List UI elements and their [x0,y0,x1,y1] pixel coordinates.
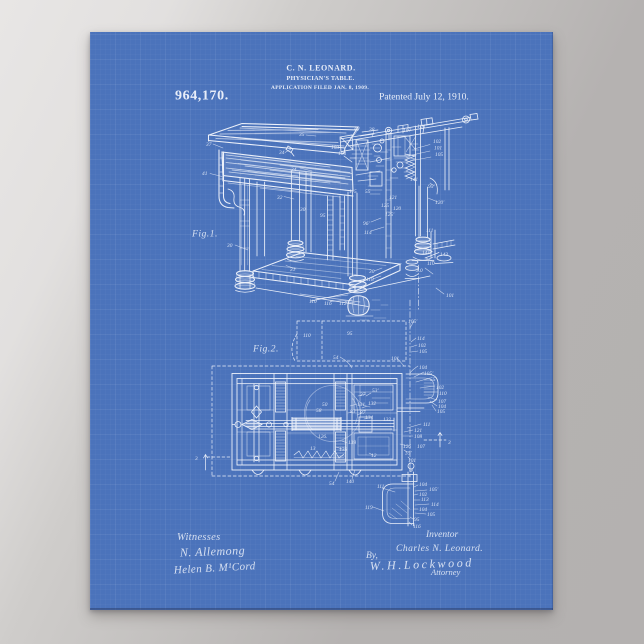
svg-text:96': 96' [363,221,370,227]
svg-text:114: 114 [431,502,439,508]
svg-text:111: 111 [377,484,385,490]
svg-text:55: 55 [365,189,371,195]
svg-text:55: 55 [430,377,436,383]
svg-text:116: 116 [413,524,421,530]
svg-text:105': 105' [408,319,418,325]
svg-text:105: 105 [437,409,445,415]
svg-text:3.0: 3.0 [415,268,423,274]
svg-text:101: 101 [446,293,454,299]
svg-text:Fig.2.: Fig.2. [252,344,279,355]
svg-text:110: 110 [439,391,447,397]
svg-text:Patented July 12, 1910.: Patented July 12, 1910. [379,92,469,103]
svg-text:102: 102 [433,139,441,145]
svg-text:58: 58 [316,408,322,414]
svg-text:104: 104 [417,124,425,130]
svg-text:30: 30 [226,243,233,249]
svg-text:141: 141 [410,177,418,183]
svg-text:Attorney: Attorney [430,567,460,577]
svg-text:104: 104 [338,151,346,157]
svg-text:120': 120' [435,200,445,206]
svg-text:32: 32 [276,195,283,201]
svg-text:PHYSICIAN'S TABLE.: PHYSICIAN'S TABLE. [287,75,355,82]
svg-text:Inventor: Inventor [425,530,458,540]
svg-text:115: 115 [349,189,357,195]
svg-text:116: 116 [324,301,332,307]
svg-text:95: 95 [414,517,420,523]
svg-text:120: 120 [393,206,401,212]
svg-text:95: 95 [347,331,353,337]
svg-text:101: 101 [408,458,416,464]
svg-text:132: 132 [368,401,376,407]
svg-text:95: 95 [320,213,326,219]
svg-text:111: 111 [423,422,431,428]
svg-text:C. N. LEONARD.: C. N. LEONARD. [286,64,355,73]
svg-text:105: 105 [435,152,443,158]
svg-text:12: 12 [371,453,377,459]
svg-text:105': 105' [429,487,439,493]
svg-text:110: 110 [303,333,311,339]
svg-text:Witnesses: Witnesses [177,532,221,543]
svg-text:138: 138 [339,447,347,453]
svg-text:Charles N. Leonard.: Charles N. Leonard. [396,543,483,554]
svg-text:41: 41 [202,171,208,177]
svg-text:34: 34 [278,150,285,156]
svg-text:95': 95' [428,184,435,190]
svg-text:143: 143 [440,252,448,258]
svg-text:54: 54 [333,355,339,361]
svg-text:Helen B. M¹Cord: Helen B. M¹Cord [173,560,257,576]
svg-text:13: 13 [310,446,316,452]
svg-text:APPLICATION FILED JAN. 8, 1909: APPLICATION FILED JAN. 8, 1909. [271,85,369,91]
svg-text:105: 105 [427,512,435,518]
svg-text:140: 140 [346,479,354,485]
svg-text:108: 108 [414,434,422,440]
svg-text:105: 105 [419,349,427,355]
svg-text:114: 114 [417,336,425,342]
svg-text:53': 53' [372,388,379,394]
svg-text:121: 121 [389,195,397,201]
svg-text:N. Allemong: N. Allemong [179,543,246,559]
svg-text:138: 138 [348,440,356,446]
svg-text:113: 113 [421,497,429,503]
svg-text:30: 30 [299,207,306,213]
svg-text:3: 3 [447,440,451,446]
svg-text:107: 107 [403,128,411,134]
svg-text:37: 37 [205,142,212,148]
svg-text:30: 30 [368,269,375,275]
svg-text:Fig.1.: Fig.1. [191,229,218,240]
svg-text:50: 50 [322,402,328,408]
svg-text:111: 111 [426,228,434,234]
svg-text:132: 132 [383,417,391,423]
svg-text:141: 141 [422,250,430,256]
svg-text:35': 35' [404,451,412,457]
svg-text:3: 3 [194,456,198,462]
svg-text:101: 101 [434,146,442,152]
svg-text:104: 104 [419,482,427,488]
svg-text:134: 134 [365,415,373,421]
svg-text:107: 107 [417,444,425,450]
svg-text:112: 112 [339,301,347,307]
svg-text:118: 118 [366,277,374,283]
svg-text:125': 125' [385,212,395,218]
svg-text:126.: 126. [318,434,327,440]
svg-text:964,170.: 964,170. [175,89,229,104]
svg-text:35: 35 [298,132,305,138]
svg-text:119: 119 [365,505,373,511]
svg-text:34: 34 [290,167,297,173]
svg-text:125: 125 [381,203,389,209]
svg-text:54: 54 [329,481,335,487]
svg-text:83: 83 [350,409,356,415]
svg-text:110: 110 [309,299,317,305]
